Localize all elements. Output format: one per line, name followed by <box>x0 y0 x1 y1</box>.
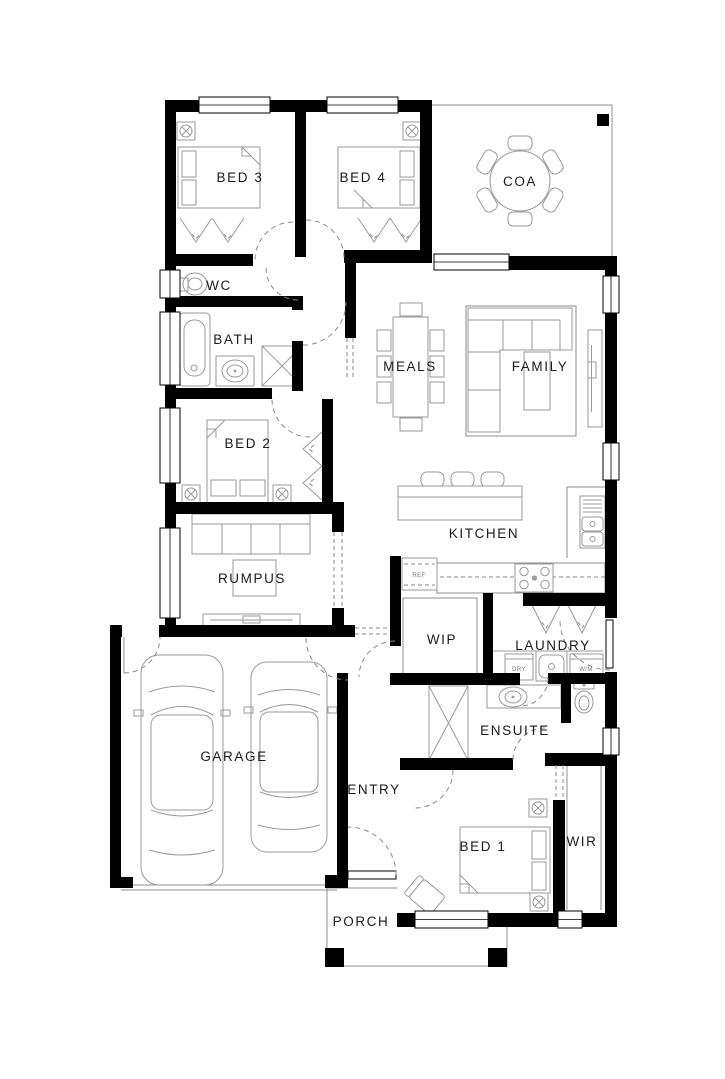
ensuite-shower-icon <box>429 686 468 760</box>
ensuite-vanity <box>487 685 561 708</box>
room-label-meals: MEALS <box>383 359 437 374</box>
car-1 <box>134 655 230 885</box>
room-label-wir: WIR <box>566 834 597 849</box>
room-label-kitchen: KITCHEN <box>449 526 519 541</box>
rumpus-tv-unit <box>203 614 300 626</box>
appliance-label-washer: W/M <box>579 667 593 673</box>
bed2-robe-doors <box>303 432 322 500</box>
appliance-label-fridge: REF <box>412 573 425 579</box>
window <box>415 911 488 928</box>
window <box>327 97 398 113</box>
bed3-robe-doors <box>180 218 244 242</box>
room-label-bed3: BED 3 <box>216 170 263 185</box>
bed1-chair <box>404 875 445 915</box>
room-label-wc: WC <box>206 278 232 293</box>
family-tv-unit <box>588 330 602 427</box>
room-label-garage: GARAGE <box>200 749 267 764</box>
bed4-robe-doors <box>358 218 422 242</box>
room-label-bed1: BED 1 <box>459 839 506 854</box>
walls <box>110 100 617 967</box>
room-label-bath: BATH <box>213 332 254 347</box>
garage-side-door <box>124 637 160 673</box>
bed1-bed <box>460 827 550 893</box>
room-label-entry: ENTRY <box>347 782 401 797</box>
room-label-ensuite: ENSUITE <box>480 723 550 738</box>
floor-plan: BED 3 BED 4 COA WC BATH MEALS FAMILY BED… <box>0 0 725 1079</box>
room-label-laundry: LAUNDRY <box>515 638 590 653</box>
labels: BED 3 BED 4 COA WC BATH MEALS FAMILY BED… <box>200 170 597 929</box>
window <box>603 728 619 755</box>
front-door <box>348 827 396 879</box>
window <box>199 97 270 113</box>
kitchen-cooktop <box>515 564 553 592</box>
room-label-wip: WIP <box>427 632 457 647</box>
room-label-porch: PORCH <box>333 914 390 929</box>
window <box>160 408 180 483</box>
garage-side-door-opening <box>122 624 159 638</box>
kitchen-sink <box>580 496 605 548</box>
window <box>558 911 582 928</box>
ensuite-toilet <box>574 681 594 713</box>
room-label-family: FAMILY <box>512 359 569 374</box>
kitchen-island <box>398 472 522 520</box>
room-label-rumpus: RUMPUS <box>218 571 286 586</box>
bath-vanity <box>216 356 254 386</box>
outline-layer <box>121 105 612 966</box>
room-label-bed2: BED 2 <box>224 436 271 451</box>
room-label-coa: COA <box>503 174 537 189</box>
bathtub <box>179 313 210 386</box>
window <box>160 528 180 618</box>
rumpus-sofa <box>192 514 310 554</box>
room-label-bed4: BED 4 <box>339 170 386 185</box>
floor-plan-page: BED 3 BED 4 COA WC BATH MEALS FAMILY BED… <box>0 0 725 1079</box>
bed2-bed <box>207 420 268 503</box>
window <box>160 312 180 385</box>
window <box>160 270 180 298</box>
window <box>603 443 619 480</box>
window <box>603 276 619 313</box>
appliance-label-dryer: DRY <box>512 667 526 673</box>
sliding-door <box>434 254 509 270</box>
